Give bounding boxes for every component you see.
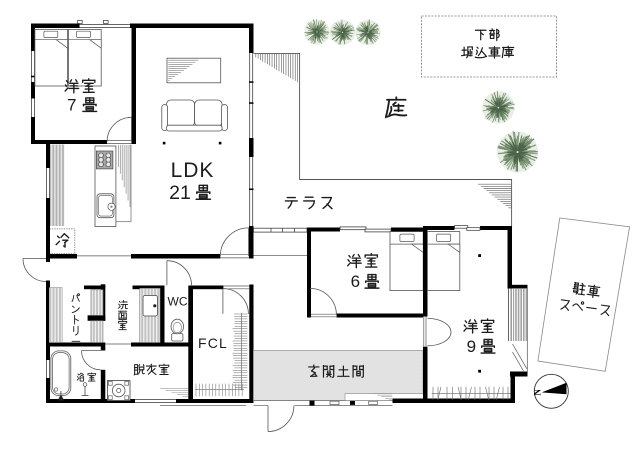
svg-text:N: N: [533, 389, 543, 396]
svg-text:9: 9: [467, 337, 476, 356]
svg-text:6: 6: [351, 272, 360, 291]
svg-text:WC: WC: [168, 295, 188, 309]
svg-text:7: 7: [67, 95, 76, 114]
svg-text:FCL: FCL: [198, 335, 228, 351]
svg-text:21: 21: [169, 182, 191, 204]
svg-text:LDK: LDK: [171, 159, 215, 182]
